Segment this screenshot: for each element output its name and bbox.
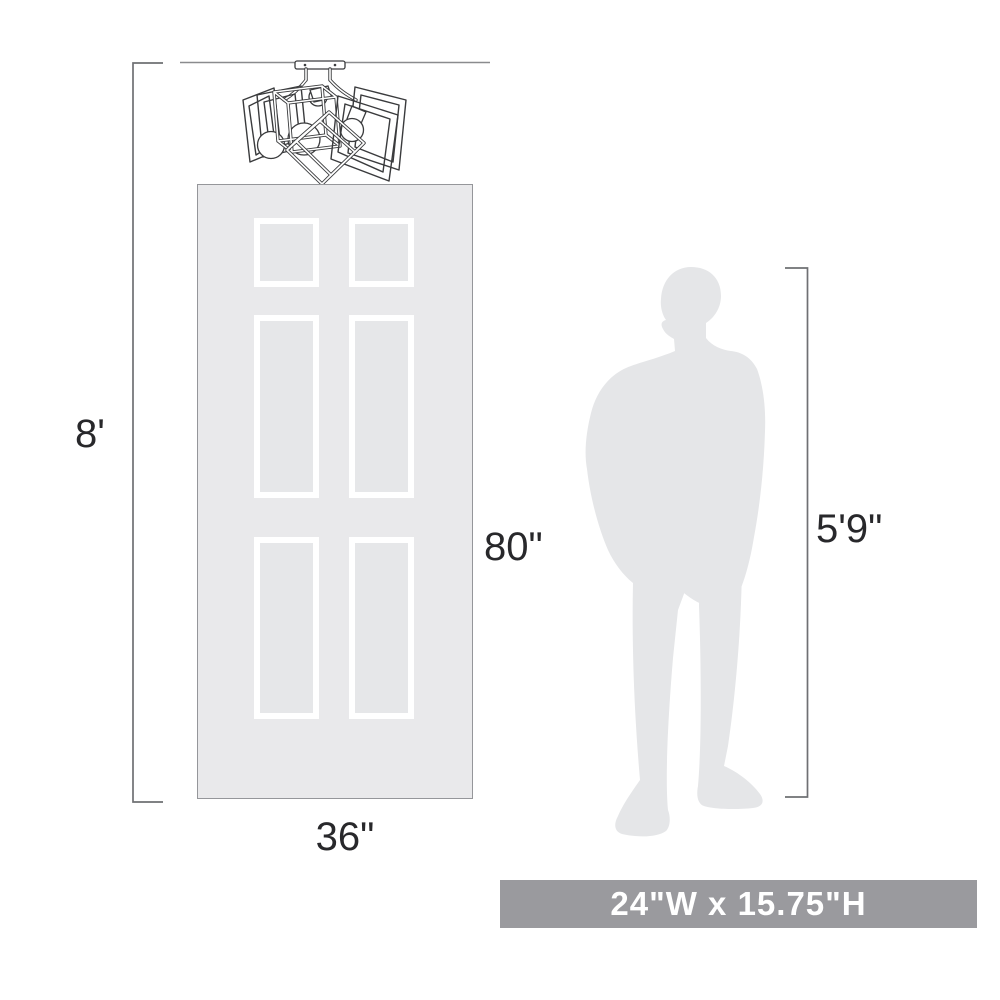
standing-man-silhouette-icon [586,267,766,836]
person-left-leg [615,553,698,836]
door-height-label: 80" [484,526,543,568]
fixture-canopy [295,61,345,69]
fixture-size-label: 24"W x 15.75"H [610,885,866,923]
person-right-leg [697,556,762,809]
door-width-label: 36" [300,816,390,858]
dimension-diagram: 8' 80" 36" 5'9" 24"W x 15.75"H [0,0,1000,1000]
door-silhouette [197,184,473,799]
door-panel-bottom-right [349,537,414,719]
dimension-line-person-height [785,268,808,797]
fixture-size-banner: 24"W x 15.75"H [500,880,977,928]
door-panel-bottom-left [254,537,319,719]
door-panel-middle-left [254,315,319,498]
canopy-screw [334,64,337,67]
scene-canvas [0,0,1000,1000]
dimension-line-ceiling-height [133,63,163,802]
ceiling-height-label: 8' [60,413,120,455]
person-height-label: 5'9" [816,508,882,550]
door-panel-middle-right [349,315,414,498]
door-panel-top-left [254,218,319,287]
ceiling-light-fixture-icon [243,61,406,184]
canopy-screw [304,64,307,67]
door-panel-top-right [349,218,414,287]
